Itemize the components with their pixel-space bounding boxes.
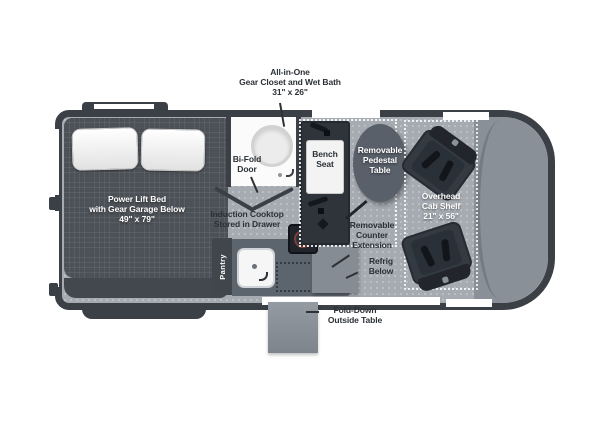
gear-closet-label: All-in-One Gear Closet and Wet Bath 31" … (238, 68, 342, 97)
window (443, 112, 489, 120)
induction-cooktop-label: Induction Cooktop Stored in Drawer (202, 210, 292, 230)
pillow (71, 127, 138, 171)
label-line: Below (358, 267, 404, 277)
outside-table-label: Fold-Down Outside Table (318, 306, 392, 326)
label-line: 21" x 56" (402, 212, 480, 222)
label-line: Extension (340, 241, 404, 251)
toilet-icon (278, 173, 282, 177)
pantry-cabinet: Pantry (212, 238, 232, 295)
sink-drain-icon (252, 264, 257, 269)
window (446, 299, 492, 307)
roof-notch-window (94, 104, 154, 109)
label-line: 49" x 79" (72, 215, 202, 225)
bench-seat-label: Bench Seat (305, 150, 345, 170)
refrig-below-label: Refrig Below (358, 257, 404, 277)
label-line: Door (224, 165, 270, 175)
leader-line (306, 311, 319, 313)
rear-door-window (53, 211, 59, 287)
label-line: Table (350, 166, 410, 176)
fold-down-outside-table (268, 302, 318, 353)
pantry-label: Pantry (218, 254, 227, 280)
bed-label: Power Lift Bed with Gear Garage Below 49… (72, 195, 202, 224)
window (312, 110, 380, 118)
overhead-cab-shelf-label: Overhead Cab Shelf 21" x 56" (402, 192, 480, 221)
dashboard-curve (476, 121, 522, 299)
label-line: 31" x 26" (238, 88, 342, 98)
counter-extension-label: Removable Counter Extension (340, 221, 404, 250)
door-hinge (49, 197, 58, 210)
gear-garage-strip (64, 278, 228, 298)
wall (226, 117, 231, 187)
bifold-door-label: Bi-Fold Door (224, 155, 270, 175)
label-line: Stored in Drawer (202, 220, 292, 230)
label-line: Outside Table (318, 316, 392, 326)
pillow (141, 128, 206, 171)
pedestal-table-label: Removable Pedestal Table (350, 146, 410, 175)
label-line: Seat (305, 160, 345, 170)
counter-extension (312, 246, 358, 293)
rear-door-window (53, 129, 59, 195)
floorplan-canvas: Pantry All-in-One (0, 0, 600, 430)
door-hinge (49, 283, 58, 296)
